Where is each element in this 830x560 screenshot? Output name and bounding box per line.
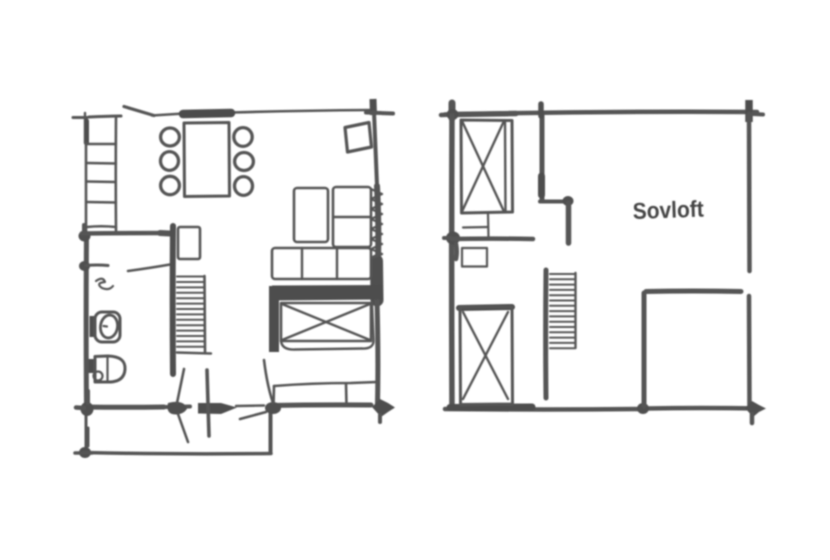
svg-text:Sovloft: Sovloft bbox=[632, 196, 704, 224]
